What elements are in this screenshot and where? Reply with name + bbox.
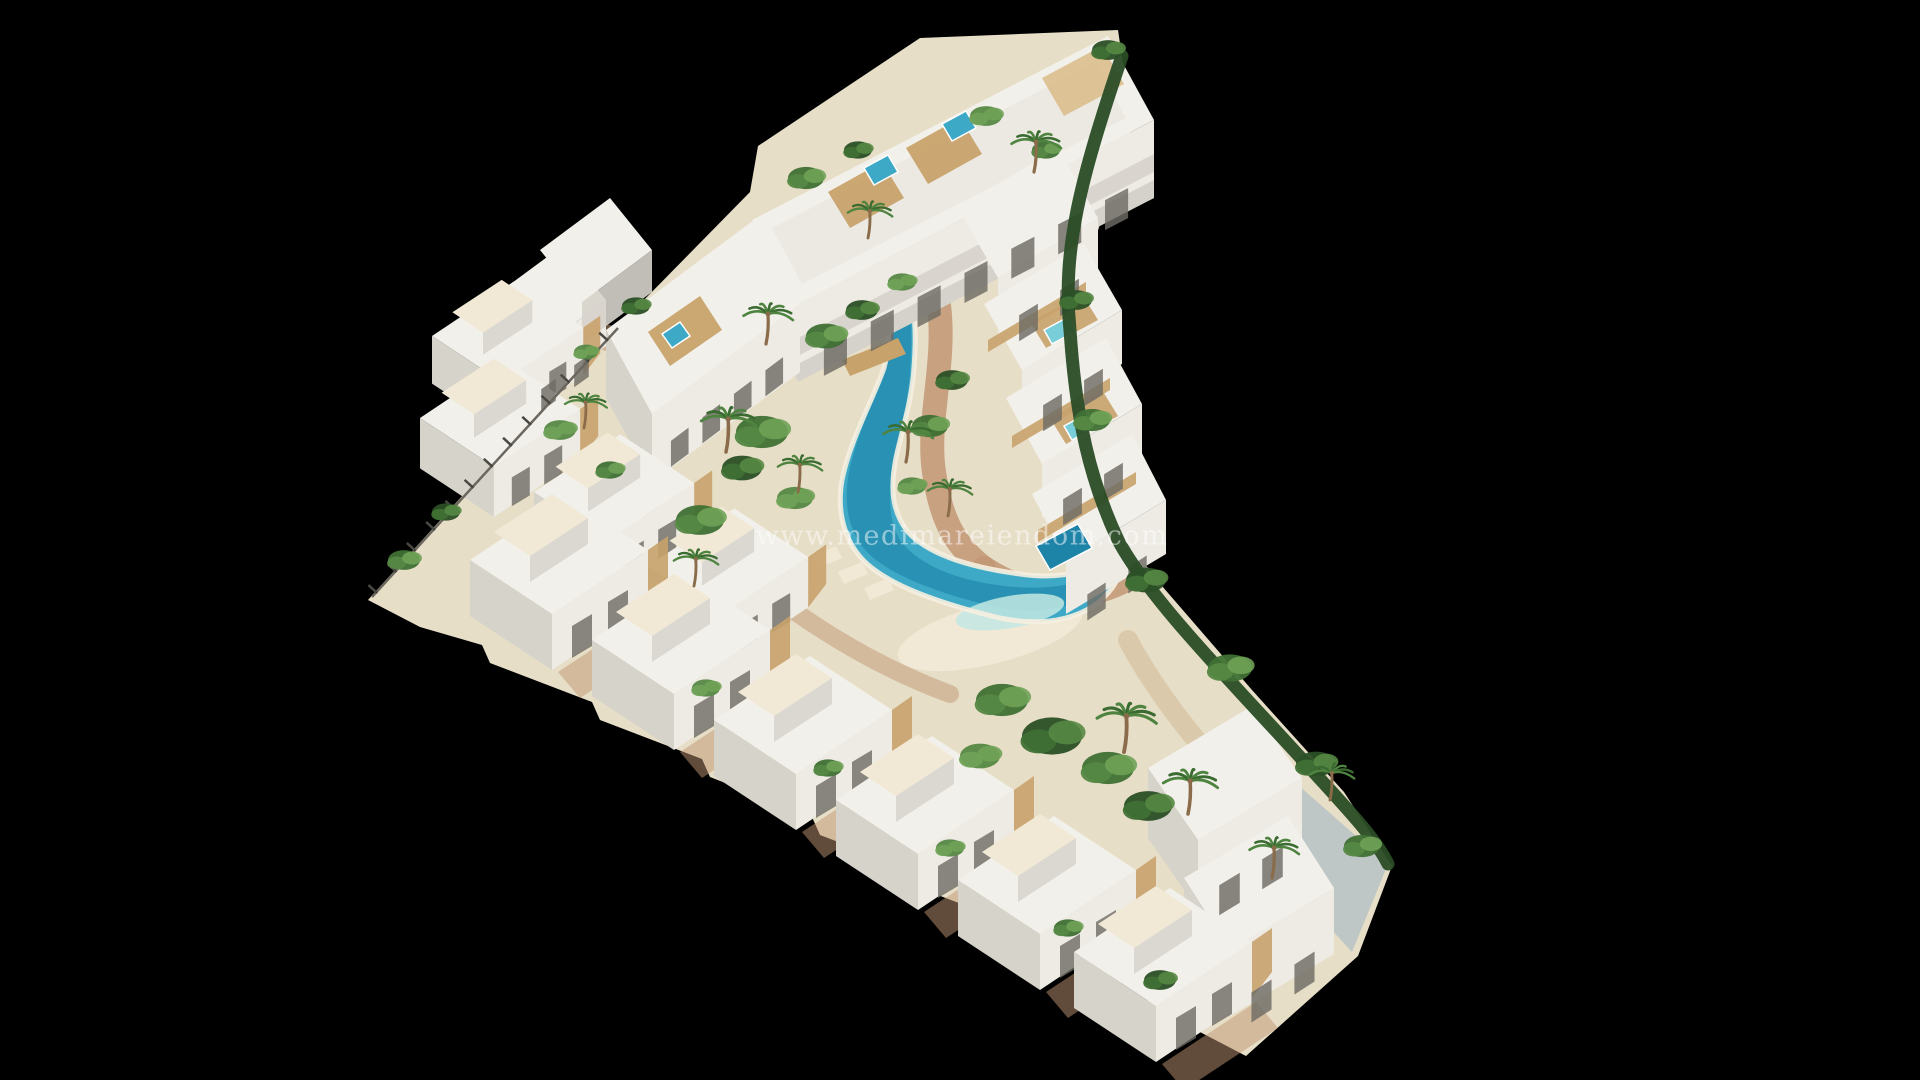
- shrub-lobe: [978, 746, 1003, 762]
- palm-crown: [1188, 778, 1193, 783]
- palm-crown: [766, 312, 771, 317]
- shrub-lobe: [984, 108, 1004, 121]
- shrub-lobe: [826, 761, 843, 772]
- palm-frond: [1332, 772, 1354, 778]
- shrub-lobe: [1090, 411, 1112, 425]
- shrub-lobe: [804, 169, 826, 183]
- shrub-lobe: [1105, 754, 1137, 775]
- palm-crown: [726, 416, 731, 421]
- palm-crown: [868, 209, 872, 213]
- palm-crown: [798, 463, 802, 467]
- palm-crown: [948, 487, 952, 491]
- shrub-lobe: [402, 552, 422, 565]
- shrub-lobe: [928, 417, 950, 431]
- palm-crown: [1330, 771, 1334, 775]
- shrub-lobe: [1158, 972, 1178, 985]
- shrub-lobe: [910, 479, 927, 490]
- shrub-lobe: [856, 143, 873, 154]
- property-render: [0, 0, 1920, 1080]
- shrub-lobe: [1074, 292, 1094, 305]
- shrub-lobe: [634, 299, 651, 310]
- palm-crown: [1124, 713, 1130, 719]
- shrub-lobe: [759, 418, 791, 439]
- shrub-lobe: [1066, 921, 1083, 932]
- shrub-lobe: [608, 463, 625, 474]
- palm-crown: [584, 400, 588, 404]
- shrub-lobe: [1144, 570, 1169, 586]
- palm-crown: [694, 557, 698, 561]
- shrub-lobe: [900, 275, 917, 286]
- palm-crown: [906, 430, 911, 435]
- shrub-lobe: [1145, 794, 1175, 813]
- palm-crown: [1034, 140, 1039, 145]
- shrub-lobe: [1227, 657, 1254, 675]
- shrub-lobe: [793, 489, 815, 503]
- shrub-lobe: [999, 686, 1031, 707]
- shrub-lobe: [585, 346, 600, 356]
- shrub-lobe: [1048, 720, 1085, 744]
- shrub-lobe: [740, 458, 765, 474]
- shrub-lobe: [697, 508, 727, 527]
- shrub-lobe: [860, 302, 880, 315]
- shrub-lobe: [948, 841, 965, 852]
- palm-crown: [1272, 846, 1277, 851]
- shrub-lobe: [704, 681, 721, 692]
- render-stage: www.medimareiendom.com: [0, 0, 1920, 1080]
- shrub-lobe: [950, 372, 970, 385]
- shrub-lobe: [1106, 42, 1126, 55]
- shrub-lobe: [824, 326, 849, 342]
- shrub-lobe: [558, 422, 578, 435]
- shrub-lobe: [1360, 837, 1382, 851]
- shrub-lobe: [444, 505, 461, 516]
